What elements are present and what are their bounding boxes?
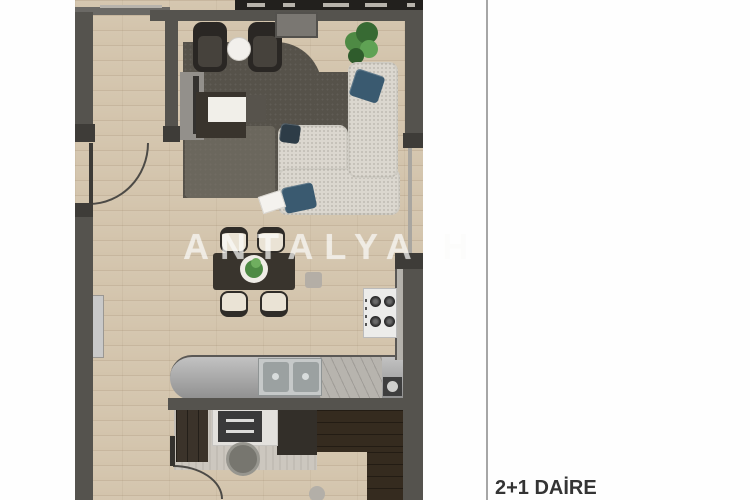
- stove-burner: [370, 316, 381, 327]
- bedroom-door-arc: [173, 465, 223, 499]
- sofa-pillow-dark: [279, 123, 301, 145]
- double-sink: [258, 358, 322, 396]
- small-floor-mat: [305, 272, 322, 288]
- listing-page-fragment: ANTALYA H 2+1 DAİRE: [0, 0, 750, 500]
- hall-window-line: [100, 5, 162, 8]
- bedroom-dark-floor-extension: [367, 452, 405, 500]
- kitchen-counter-marble-section: [320, 357, 382, 399]
- wall-left-cap: [75, 203, 93, 217]
- wall-right-upper: [405, 12, 423, 136]
- desk-chair: [226, 442, 260, 476]
- wall-left-lower: [75, 214, 93, 500]
- armchair-seat: [198, 36, 222, 67]
- wall-left-upper: [75, 12, 93, 124]
- stove-burner: [384, 316, 395, 327]
- round-sink-basin: [387, 381, 398, 392]
- bedroom-door-leaf: [170, 436, 175, 466]
- drawer-handle: [226, 419, 254, 422]
- watermark: ANTALYA H: [183, 226, 479, 268]
- wall-niche: [275, 12, 318, 38]
- wall-left-cap: [75, 124, 95, 142]
- armchair: [193, 22, 227, 72]
- radiator: [92, 295, 104, 358]
- stove-knobs: [365, 299, 367, 327]
- wardrobe: [176, 410, 208, 462]
- desk-drawers: [218, 411, 262, 442]
- entry-door-arc: [89, 143, 149, 205]
- balcony-detail: [365, 3, 387, 7]
- balcony-strip: [235, 0, 423, 10]
- bedroom-dark-floor: [317, 410, 405, 452]
- wall-right-lower: [403, 253, 423, 500]
- balcony-detail: [407, 3, 415, 7]
- faucet-dot: [302, 373, 309, 380]
- round-side-table: [227, 37, 251, 61]
- table-divider-line: [486, 0, 488, 500]
- stove: [363, 288, 397, 338]
- dining-chair: [260, 291, 288, 317]
- balcony-detail: [247, 3, 265, 7]
- wall-below-counter: [168, 398, 423, 410]
- dining-chair: [220, 291, 248, 317]
- coffee-table-tray: [208, 97, 246, 122]
- balcony-detail: [283, 3, 295, 7]
- wall-hall-divider: [165, 12, 178, 130]
- stove-burner: [370, 296, 381, 307]
- entry-door-leaf: [89, 143, 93, 205]
- coffee-table-side-block: [246, 95, 266, 122]
- balcony-detail: [323, 3, 349, 7]
- wall-hall-divider-cap: [163, 126, 180, 142]
- wall-right-cap: [403, 133, 423, 148]
- drawer-handle: [226, 430, 254, 433]
- stove-burner: [384, 296, 395, 307]
- round-sink: [383, 377, 402, 396]
- faucet-dot: [272, 373, 279, 380]
- armchair-seat: [253, 36, 277, 67]
- unit-type-label: 2+1 DAİRE: [495, 477, 597, 500]
- closet-block: [277, 410, 317, 455]
- door-knob-detail: [309, 486, 325, 500]
